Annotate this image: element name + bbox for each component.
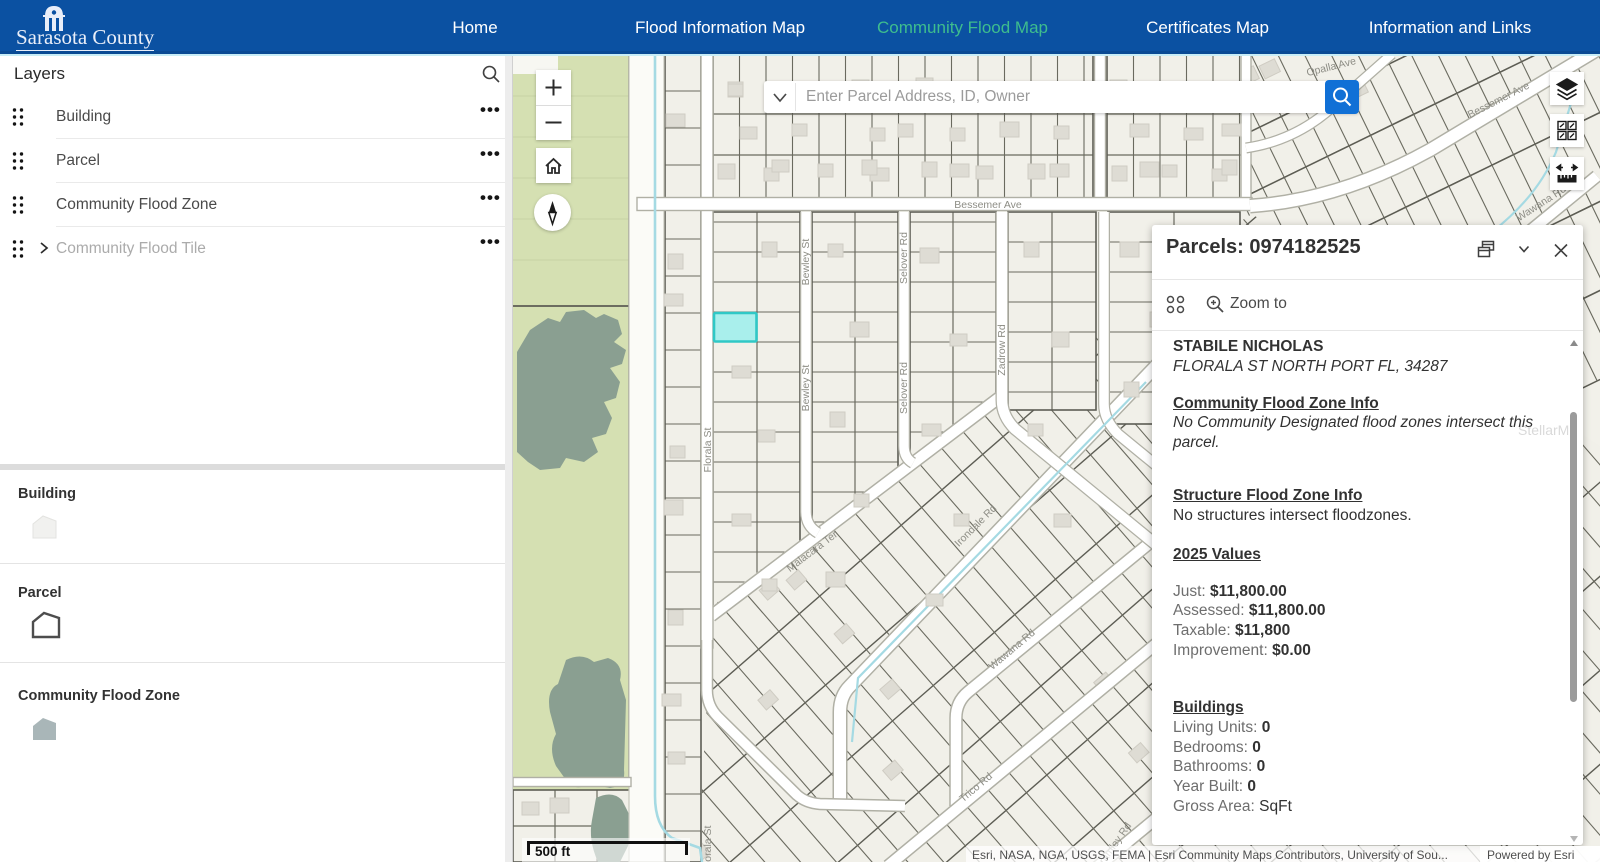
svg-text:Bewley St: Bewley St <box>800 239 812 286</box>
svg-text:Zadrow Rd: Zadrow Rd <box>996 324 1008 376</box>
svg-text:Bessemer Ave: Bessemer Ave <box>954 199 1022 211</box>
svg-text:Florala St: Florala St <box>702 825 714 862</box>
svg-text:Bewley St: Bewley St <box>800 365 812 412</box>
svg-text:Florala St: Florala St <box>702 427 714 472</box>
svg-text:Selover Rd: Selover Rd <box>898 232 910 284</box>
svg-text:Selover Rd: Selover Rd <box>898 362 910 414</box>
